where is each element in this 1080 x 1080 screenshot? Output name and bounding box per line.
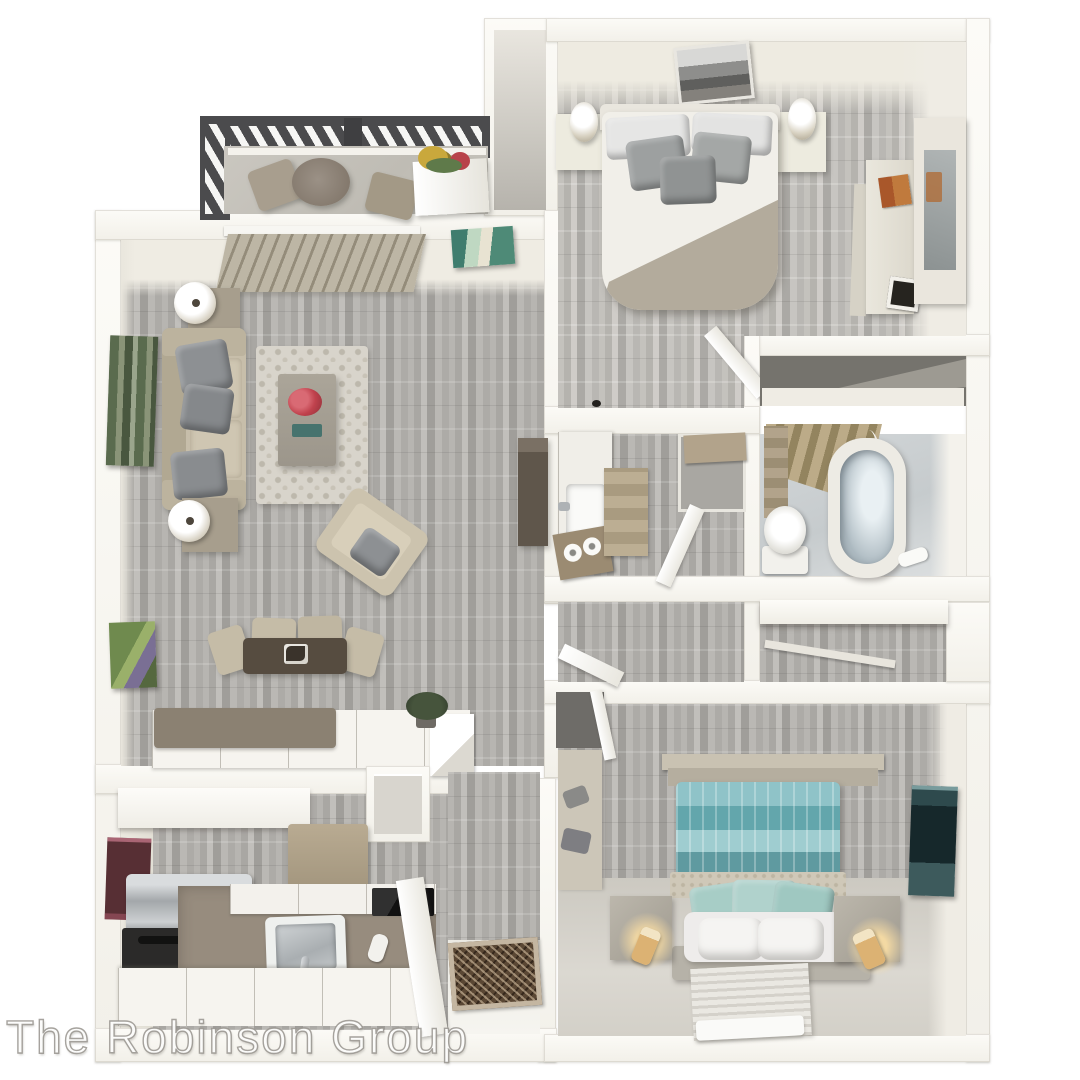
bath2-wood-strip (764, 426, 788, 518)
sofa-pillow-3 (170, 447, 229, 500)
railing-slats-left (205, 124, 225, 214)
kitchen-corner-shelf (430, 714, 474, 776)
counter-plant (406, 692, 448, 720)
bedroom1-art-mountain (673, 40, 755, 106)
bed1-pillow-grey-3 (659, 155, 717, 205)
pantry-closet (366, 766, 430, 842)
entry-door-mat (448, 937, 543, 1011)
wall-bath1-top-band (544, 406, 760, 434)
refrigerator (288, 824, 368, 892)
wall-entry-vertical (538, 778, 556, 1062)
wall-bed1-closet-band (746, 334, 990, 356)
patio-table (292, 158, 350, 206)
dining-centerpiece (284, 644, 308, 664)
bedroom2-art-teal (908, 785, 958, 897)
floor-entry (448, 772, 540, 944)
bath1-faucet (558, 502, 570, 511)
bathtub-basin (840, 450, 894, 564)
wall-bottom-right (544, 1034, 990, 1062)
lamp-bed1-right (788, 98, 816, 140)
closetA-front-band (762, 388, 964, 406)
bedroom1-doorstop (592, 400, 601, 407)
bed2-foot-pillow-2 (758, 918, 824, 960)
dresser-books (878, 174, 912, 208)
toilet-bowl (764, 506, 806, 554)
bed2-vanity-counter (558, 750, 602, 890)
media-console-top (518, 438, 548, 452)
mirror-frame (914, 118, 966, 304)
wall-right-outer (966, 18, 990, 1062)
bath1-wood-mat (604, 468, 648, 556)
wall-top-right (546, 18, 990, 42)
bed2-foot-pillow-1 (698, 918, 764, 960)
towel-roll-1 (562, 542, 583, 563)
kitchen-passthrough-shelf (118, 788, 310, 828)
wall-bath-bottom-band (544, 576, 990, 602)
mirror-glass (924, 150, 956, 270)
living-art-forest (106, 335, 159, 467)
living-art-meadow (109, 621, 157, 689)
sofa-pillow-2 (179, 383, 235, 436)
bath2-right-wall-face (930, 434, 966, 576)
bathtub (828, 438, 906, 578)
planter-greenery (426, 158, 462, 173)
coffee-table-flowers (288, 388, 322, 416)
media-console (518, 438, 548, 546)
towel-roll-2 (582, 536, 603, 557)
floorplan-render: The Robinson Group (0, 0, 1080, 1080)
lamp-bed1-left (570, 102, 598, 142)
closetA-interior (760, 356, 966, 406)
floor-lamp-top-finial (192, 299, 200, 307)
chase-interior (494, 30, 546, 210)
bed2-duvet-teal (676, 782, 840, 878)
watermark-text: The Robinson Group (6, 1010, 469, 1064)
floor-lamp-bottom-finial (186, 517, 194, 525)
kitchen-bar-top (154, 708, 336, 748)
pantry-interior (374, 774, 422, 834)
wall-closetB-right (946, 602, 990, 682)
living-art-colorful (451, 226, 515, 268)
coffee-table-tray (292, 424, 322, 437)
bath1-shelf-beam (683, 432, 746, 463)
vertical-blinds (216, 234, 426, 292)
mirror-reflection (926, 172, 942, 202)
closetB-shelf (760, 600, 948, 624)
